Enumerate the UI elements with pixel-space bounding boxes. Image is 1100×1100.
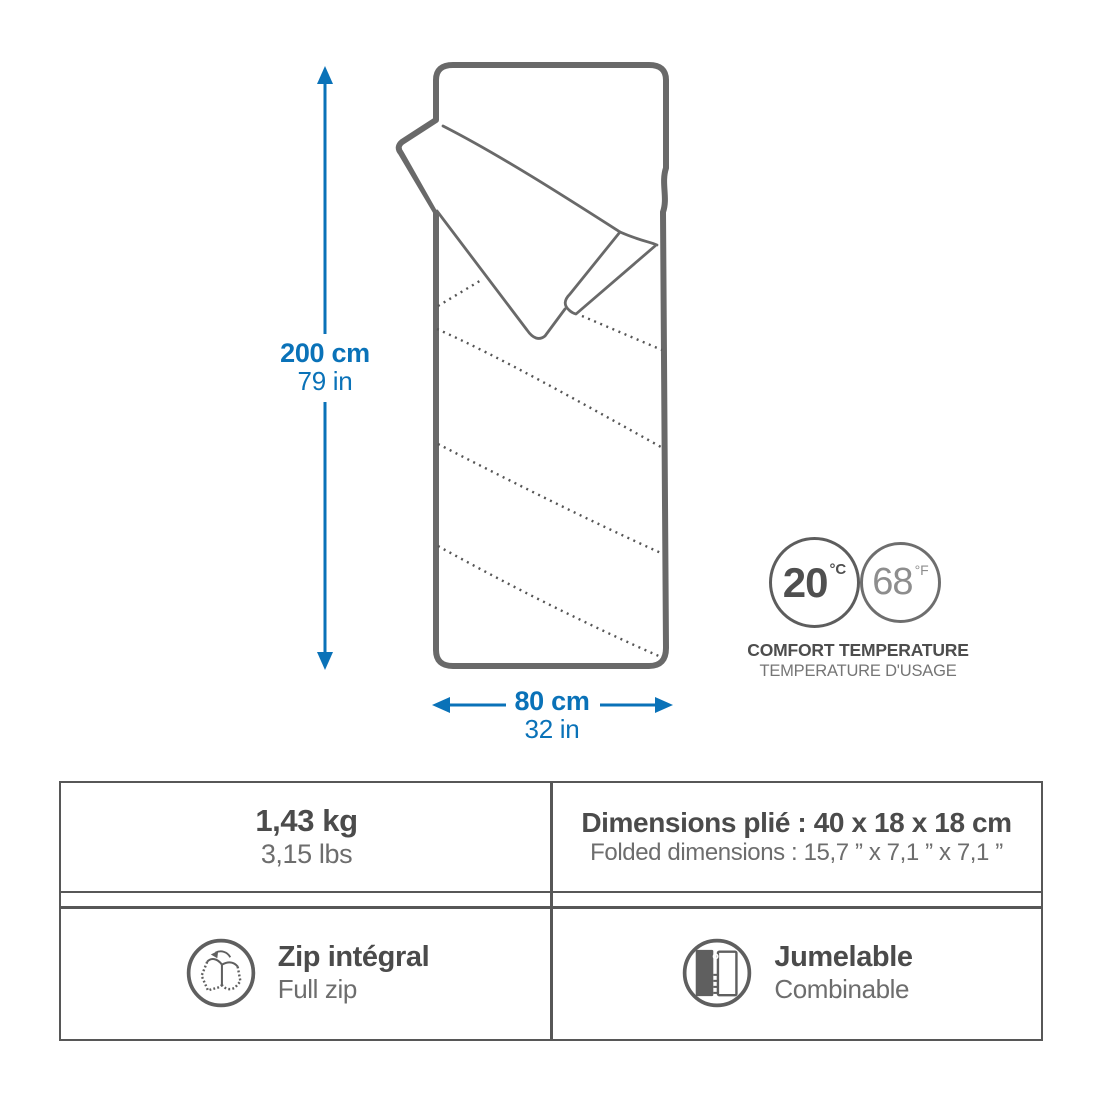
comfort-temperature-label-en: COMFORT TEMPERATURE (703, 640, 1013, 661)
full-zip-cell: Zip intégral Full zip (61, 909, 552, 1036)
celsius-temperature-circle: 20 °C (769, 537, 860, 628)
temperature-caption: COMFORT TEMPERATURE TEMPERATURE D'USAGE (703, 640, 1013, 681)
width-imperial: 32 in (462, 716, 642, 744)
combinable-label-fr: Jumelable (774, 940, 912, 975)
combinable-label-en: Combinable (774, 974, 909, 1005)
celsius-value: 20 (783, 559, 828, 607)
height-dimension-label: 200 cm 79 in (235, 339, 415, 395)
width-dimension-label: 80 cm 32 in (462, 687, 642, 743)
celsius-unit: °C (829, 561, 846, 578)
table-column-divider (550, 783, 553, 1039)
fahrenheit-value: 68 (872, 561, 912, 604)
combinable-cell: Jumelable Combinable (552, 909, 1041, 1036)
product-spec-infographic: 200 cm 79 in 80 cm 32 in 20 °C 68 °F COM… (0, 0, 1100, 1100)
full-zip-open-bag-icon (184, 936, 258, 1010)
fahrenheit-unit: °F (915, 562, 929, 578)
full-zip-label-fr: Zip intégral (278, 940, 430, 975)
weight-metric: 1,43 kg (255, 803, 357, 840)
width-metric: 80 cm (462, 687, 642, 716)
full-zip-label-en: Full zip (278, 974, 357, 1005)
folded-dimensions-metric: Dimensions plié : 40 x 18 x 18 cm (581, 806, 1011, 839)
spec-table: 1,43 kg 3,15 lbs Dimensions plié : 40 x … (59, 781, 1043, 1041)
weight-cell: 1,43 kg 3,15 lbs (61, 783, 552, 891)
folded-dimensions-imperial: Folded dimensions : 15,7 ” x 7,1 ” x 7,1… (590, 839, 1003, 867)
height-imperial: 79 in (235, 368, 415, 396)
height-metric: 200 cm (235, 339, 415, 368)
zip-together-icon (680, 936, 754, 1010)
folded-dimensions-cell: Dimensions plié : 40 x 18 x 18 cm Folded… (552, 783, 1041, 891)
weight-imperial: 3,15 lbs (261, 839, 352, 871)
fahrenheit-temperature-circle: 68 °F (860, 542, 941, 623)
comfort-temperature-label-fr: TEMPERATURE D'USAGE (703, 661, 1013, 681)
